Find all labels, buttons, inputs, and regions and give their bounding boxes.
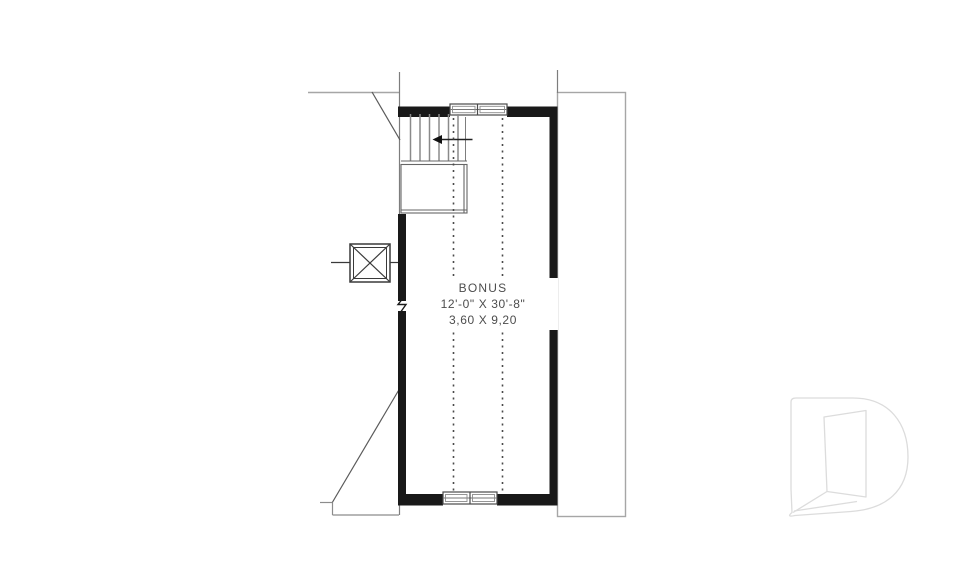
left-wall-upper-segment [398, 214, 406, 301]
roof-hip-bottom-left [332, 388, 400, 503]
bottom-windows [443, 492, 497, 504]
chimney-symbol [331, 244, 398, 282]
right-wall-upper-segment [550, 117, 558, 297]
drummond-d-logo [790, 398, 908, 516]
bottom-wall-right-segment [497, 494, 558, 506]
stair-landing [401, 165, 467, 214]
top-wall-right-segment [507, 107, 558, 118]
top-windows [450, 104, 507, 115]
room-label-block: BONUS 12'-0" X 30'-8" 3,60 X 9,20 [408, 278, 558, 330]
room-dimensions-imperial: 12'-0" X 30'-8" [408, 296, 558, 312]
bottom-wall-left-segment [398, 494, 443, 506]
adjacent-roof-plane [558, 93, 626, 517]
arrowhead-icon [433, 135, 443, 144]
logo-door-sweep [793, 492, 827, 513]
roof-hip-top-left [372, 92, 400, 140]
eave-outline [320, 503, 399, 516]
staircase [401, 114, 473, 213]
roof-hip-lines [332, 92, 400, 503]
room-dimensions-metric: 3,60 X 9,20 [408, 312, 558, 328]
right-wall-lower-segment [550, 316, 558, 494]
logo-outer-d [790, 398, 908, 516]
stair-risers [411, 114, 459, 161]
logo-door [824, 411, 866, 498]
left-wall-lower-segment [398, 311, 406, 494]
top-wall-left-segment [398, 107, 450, 118]
room-name: BONUS [408, 280, 558, 296]
floor-plan-canvas: BONUS 12'-0" X 30'-8" 3,60 X 9,20 [0, 0, 960, 569]
